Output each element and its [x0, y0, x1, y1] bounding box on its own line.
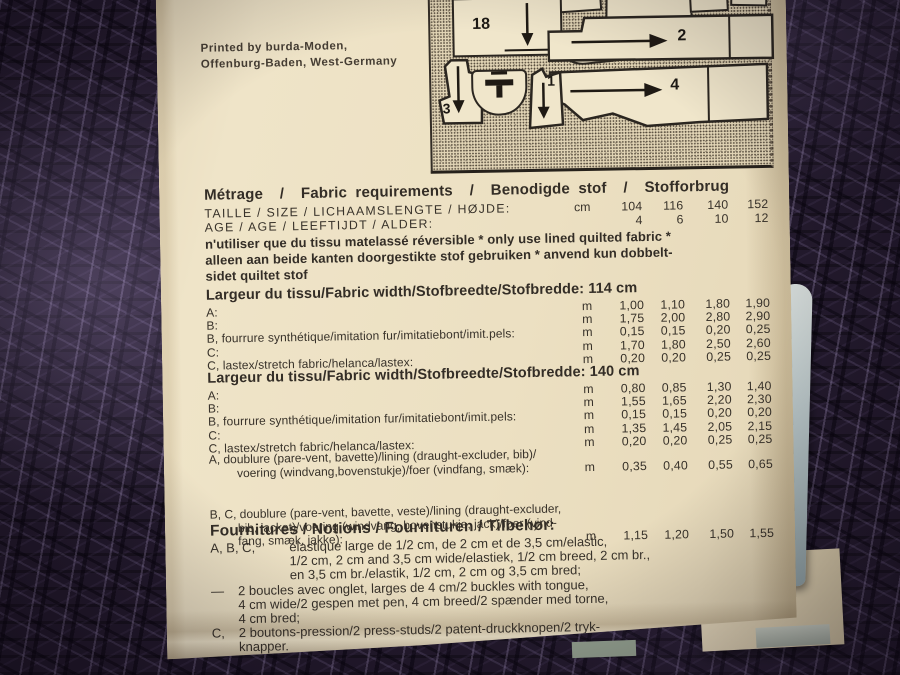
age-value: 10 [686, 212, 731, 226]
fold-line [505, 48, 551, 51]
row-unit: m [571, 409, 607, 423]
row-unit: m [572, 461, 608, 475]
piece-outline [525, 66, 566, 131]
piece-number: 1 [547, 73, 555, 89]
row-value: 0,55 [690, 458, 735, 472]
piece-number: 3 [443, 100, 451, 116]
printer-credit: Printed by burda-Moden, Offenburg-Baden,… [200, 37, 397, 72]
piece-outline [548, 61, 771, 131]
age-value: 6 [645, 213, 686, 227]
lining-row-values: m 0,35 0,40 0,55 0,65 [572, 458, 775, 475]
paper-tab-right [756, 624, 831, 648]
pattern-instruction-sheet: Printed by burda-Moden, Offenburg-Baden,… [155, 0, 797, 659]
size-value: 152 [730, 198, 770, 212]
buckle-stem [496, 86, 502, 98]
paper-tab-left [572, 640, 637, 658]
age-row-unit [568, 214, 604, 228]
age-value: 12 [731, 211, 771, 225]
size-row-unit: cm [567, 201, 603, 215]
pattern-piece-4: 4 [548, 61, 771, 131]
age-value: 4 [604, 214, 645, 228]
row-value: 0,35 [608, 460, 649, 474]
photo-scene: Printed by burda-Moden, Offenburg-Baden,… [0, 0, 900, 675]
buckle-top-line [491, 71, 507, 74]
notions-item-text: élastique large de 1/2 cm, de 2 cm et de… [289, 534, 650, 582]
notions-item-prefix: A, B, C, [210, 540, 290, 583]
pattern-piece-1: 1 [525, 66, 566, 131]
row-value: 0,40 [649, 459, 690, 473]
row-value: 0,65 [735, 458, 775, 472]
notions-item-prefix: C, [212, 626, 239, 654]
row-unit: m [570, 326, 606, 340]
notions-item-prefix: — [211, 584, 239, 626]
fabric-notice: n'utiliser que du tissu matelassé révers… [205, 227, 772, 285]
notions-item-text: 2 boucles avec onglet, larges de 4 cm/2 … [238, 577, 609, 625]
size-value: 104 [603, 200, 644, 214]
size-value: 116 [644, 199, 685, 213]
piece-number: 4 [670, 76, 679, 94]
printer-credit-line2: Offenburg-Baden, West-Germany [201, 53, 398, 72]
